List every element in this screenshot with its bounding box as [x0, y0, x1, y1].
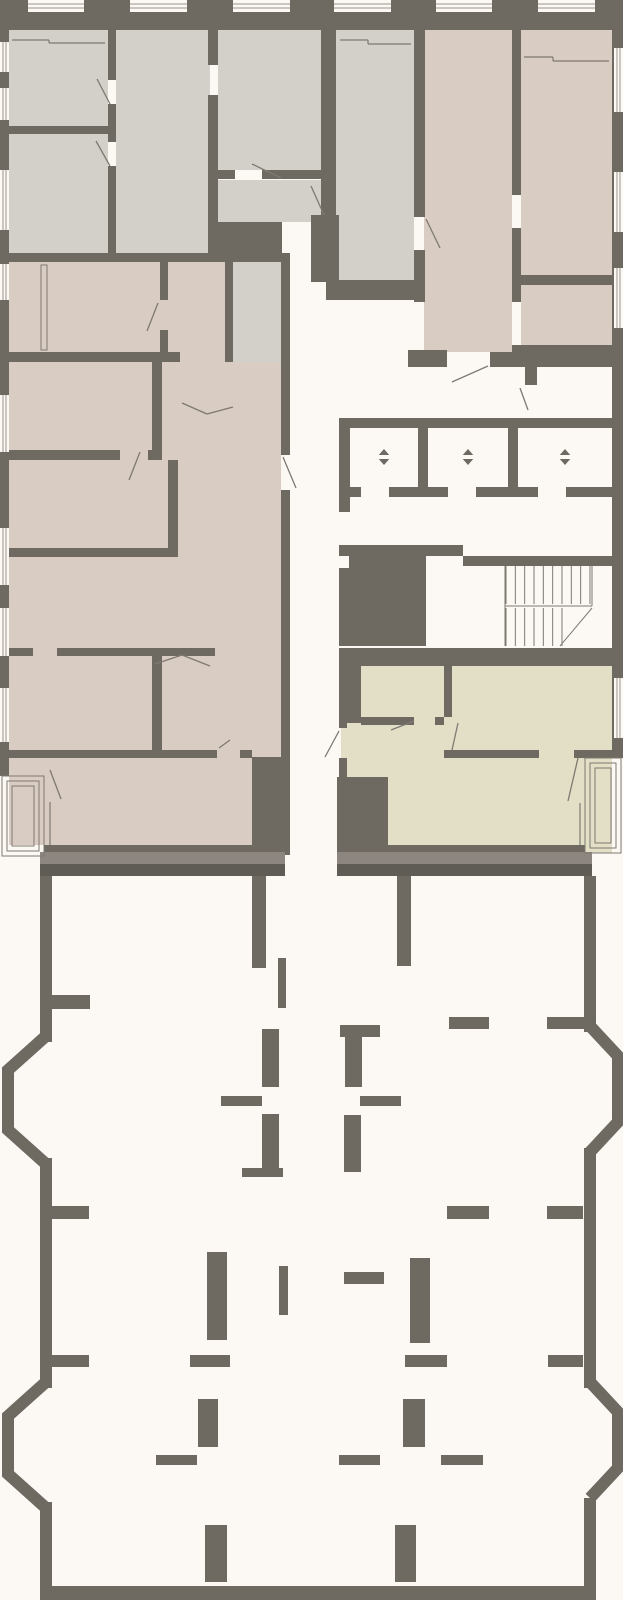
wall-segment [508, 428, 518, 487]
window [538, 0, 595, 12]
floor-plan-canvas [0, 0, 623, 1600]
window [0, 608, 9, 656]
wall-segment [389, 487, 448, 497]
wall-segment [339, 428, 350, 512]
parapet-band [337, 852, 592, 864]
wall-segment [326, 280, 414, 300]
wall-segment [218, 170, 235, 179]
window [233, 0, 290, 12]
wall-segment [40, 1502, 52, 1586]
wall-segment [339, 545, 463, 556]
window [614, 48, 623, 112]
room-beige-right-top [521, 10, 612, 275]
wall-segment [208, 10, 218, 65]
window [0, 395, 9, 452]
wall-segment [252, 876, 266, 968]
window [28, 0, 84, 12]
wall-segment [548, 1355, 583, 1367]
wall-segment [148, 450, 162, 460]
wall-segment [339, 758, 347, 777]
room-beige-right-lower [521, 285, 612, 345]
wall-segment [408, 350, 447, 367]
wall-segment [339, 487, 361, 497]
wall-segment [321, 10, 336, 215]
wall-segment [405, 1355, 447, 1367]
wall-segment [463, 556, 612, 566]
room-grey-middle [116, 10, 210, 253]
wall-segment [360, 1096, 401, 1106]
wall-segment [525, 367, 537, 385]
wall-segment [162, 750, 217, 758]
wall-segment [566, 487, 612, 497]
wall-segment [108, 104, 116, 142]
wall-segment [418, 428, 428, 487]
wall-segment [339, 1455, 380, 1465]
wall-segment [512, 10, 521, 195]
room-grey-right-lower [218, 180, 321, 222]
wall-segment [339, 723, 347, 728]
wall-segment [0, 0, 623, 30]
wall-segment [584, 876, 596, 1032]
parapet-band [40, 852, 285, 864]
wall-segment [278, 958, 286, 1008]
window [436, 0, 492, 12]
window [0, 88, 9, 120]
window [0, 42, 9, 72]
wall-segment [198, 1399, 218, 1447]
wall-segment [262, 1114, 279, 1171]
wall-segment [9, 126, 108, 134]
wall-segment [547, 1206, 583, 1219]
wall-segment [240, 750, 252, 758]
wall-notch [339, 556, 349, 568]
wall-segment [584, 1148, 596, 1388]
wall-segment [281, 253, 290, 455]
wall-segment [490, 352, 512, 367]
wall-segment [612, 0, 623, 758]
wall-segment [512, 228, 521, 302]
room-grey-tall-center [336, 10, 414, 280]
wall-segment [345, 1029, 362, 1087]
wall-segment [242, 1168, 283, 1177]
wall-segment [225, 253, 233, 362]
room-grey-right-top [218, 10, 321, 170]
wall-segment [521, 275, 612, 285]
wall-segment [0, 750, 162, 758]
wall-segment [208, 95, 218, 222]
wall-segment [584, 1498, 596, 1586]
wall-segment [0, 352, 180, 362]
wall-segment [339, 648, 361, 723]
wall-segment [0, 548, 178, 557]
wall-segment [449, 1017, 489, 1029]
wall-segment [0, 253, 225, 262]
wall-segment [40, 1586, 596, 1600]
wall-segment [403, 1399, 425, 1447]
wall-segment [395, 1525, 416, 1582]
wall-segment [52, 1206, 89, 1219]
wall-segment [160, 262, 168, 300]
wall-segment [190, 1355, 230, 1367]
wall-segment [339, 418, 612, 428]
room-grey-left-2 [9, 134, 108, 253]
wall-segment [221, 1096, 262, 1106]
window [0, 528, 9, 585]
window [334, 0, 391, 12]
window [0, 264, 9, 300]
wall-segment [40, 1158, 52, 1388]
wall-segment [262, 170, 321, 179]
wall-segment [344, 1272, 384, 1284]
wall-segment [152, 656, 162, 750]
wall-segment [414, 250, 425, 302]
wall-segment [341, 845, 585, 853]
corridor-grey [233, 253, 281, 362]
window [0, 688, 9, 742]
wall-segment [279, 1266, 288, 1315]
room-beige-right-corridor [424, 10, 512, 352]
wall-segment [339, 556, 426, 646]
wall-segment [262, 1029, 279, 1087]
wall-segment [337, 777, 388, 853]
wall-segment [410, 1258, 430, 1343]
wall-segment [512, 345, 612, 367]
window [130, 0, 187, 12]
wall-segment [441, 1455, 483, 1465]
parapet-band [40, 864, 285, 876]
parapet-band [337, 864, 592, 876]
wall-segment [160, 330, 168, 352]
wall-segment [252, 757, 290, 855]
wall-segment [444, 658, 452, 717]
floor-plan [0, 0, 623, 1600]
wall-segment [57, 648, 215, 656]
wall-segment [108, 166, 116, 253]
wall-segment [311, 215, 339, 282]
wall-segment [435, 717, 444, 725]
wall-segment [168, 460, 178, 557]
wall-segment [339, 648, 612, 666]
wall-segment [344, 1115, 361, 1172]
wall-segment [156, 1455, 197, 1465]
wall-segment [547, 1017, 584, 1029]
window [0, 170, 9, 230]
wall-segment [52, 1355, 89, 1367]
wall-segment [52, 995, 90, 1009]
wall-segment [476, 487, 538, 497]
wall-segment [205, 1525, 227, 1582]
wall-segment [207, 1252, 227, 1340]
window [614, 172, 623, 232]
wall-segment [0, 450, 120, 460]
wall-segment [444, 750, 539, 758]
wall-segment [108, 10, 116, 80]
wall-segment [447, 1206, 489, 1219]
wall-segment [574, 750, 612, 758]
wall-segment [40, 876, 52, 1042]
window [614, 268, 623, 328]
wall-segment [397, 876, 411, 966]
window [614, 678, 623, 738]
wall-segment [414, 10, 425, 217]
wall-segment [152, 362, 162, 450]
